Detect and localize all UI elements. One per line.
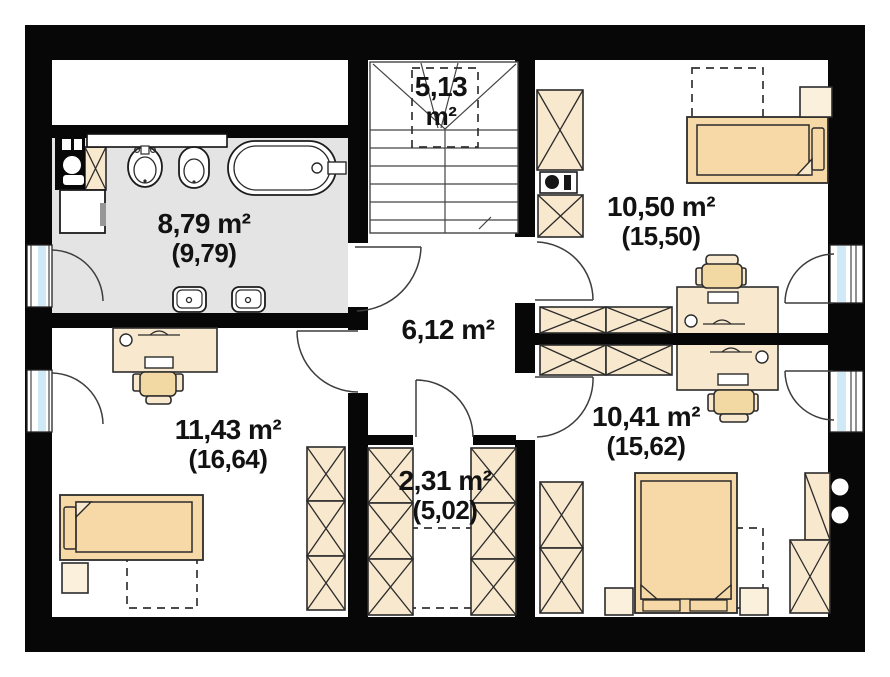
- toilet-icon: [55, 137, 85, 190]
- window-swing: [52, 373, 103, 424]
- nightstand: [605, 588, 633, 615]
- window-swing: [785, 371, 834, 420]
- dashed-box-closet: [410, 528, 478, 608]
- door-bedroom-bottom-left: [297, 331, 358, 392]
- bathtub-icon: [228, 141, 346, 195]
- wardrobe-icon: [790, 473, 830, 613]
- nightstand: [62, 563, 88, 593]
- window-swing: [785, 254, 834, 303]
- window-icon: [27, 370, 52, 432]
- room-label-bathroom: 8,79 m²(9,79): [158, 209, 251, 267]
- desk-lamp-icon: [756, 351, 768, 363]
- window-icon: [830, 371, 863, 432]
- door-bathroom: [355, 247, 421, 311]
- desk-chair: [696, 255, 746, 288]
- bathroom-cabinet-icon: [85, 147, 106, 190]
- dresser-icon: [540, 172, 577, 193]
- room-label-bedroom-top-right: 10,50 m²(15,50): [607, 192, 715, 250]
- wall-top: [25, 25, 865, 60]
- desk-chair: [133, 372, 183, 404]
- wall-bedrooms-divider: [535, 333, 828, 345]
- wall-hall-right-lower: [515, 440, 535, 617]
- bed-single-top-right: [687, 117, 828, 183]
- desk-bottom-left: [113, 328, 217, 372]
- monitor-icon: [718, 374, 748, 385]
- nightstand: [740, 588, 768, 615]
- wall-right: [828, 25, 865, 652]
- wall-bottom: [25, 617, 865, 652]
- room-label-bedroom-bottom-left: 11,43 m²(16,64): [175, 415, 282, 473]
- wardrobe-icon: [307, 447, 345, 610]
- window-icon: [27, 245, 52, 307]
- monitor-icon: [708, 292, 738, 303]
- door-bedroom-bottom-right: [535, 377, 593, 437]
- washing-machine-icon: [60, 190, 106, 233]
- monitor-icon: [145, 357, 173, 368]
- bed-single-bottom-left: [60, 495, 203, 560]
- room-label-hallway: 6,12 m²: [402, 315, 495, 345]
- door-closet: [416, 380, 473, 437]
- floor-plan: 5,13m² 8,79 m²(9,79) 10,50 m²(15,50) 6,1…: [0, 0, 890, 677]
- wall-bathroom-bedroom: [52, 313, 348, 328]
- room-label-staircase: 5,13m²: [415, 72, 468, 130]
- bidet-icon: [128, 146, 162, 187]
- bed-double-bottom-right: [635, 473, 737, 613]
- desk-lamp-icon: [120, 334, 132, 346]
- wall-closet-top-left: [365, 435, 413, 445]
- washbasin-icon: [173, 287, 206, 312]
- wall-hall-right-mid: [515, 303, 535, 373]
- nightstand: [800, 87, 832, 117]
- wall-bedroom-closet: [348, 393, 368, 617]
- toilet-icon: [179, 147, 209, 188]
- window-icon: [830, 245, 863, 303]
- desk-chair: [708, 390, 758, 422]
- cistern-shelf: [87, 134, 227, 147]
- washbasin-icon: [232, 287, 265, 312]
- room-label-bedroom-bottom-right: 10,41 m²(15,62): [592, 402, 700, 460]
- room-label-wardrobe: 2,31 m²(5,02): [399, 466, 492, 524]
- wall-left: [25, 25, 52, 652]
- wardrobe-icon: [537, 90, 583, 237]
- wall-closet-top-right: [473, 435, 516, 445]
- wall-bathroom-stairs: [348, 60, 368, 243]
- door-bedroom-top-right: [535, 242, 593, 300]
- desk-lamp-icon: [685, 315, 697, 327]
- wardrobe-icon: [540, 482, 583, 613]
